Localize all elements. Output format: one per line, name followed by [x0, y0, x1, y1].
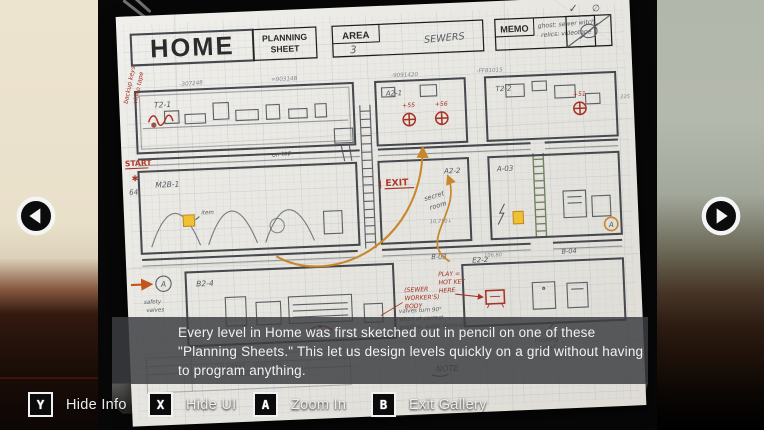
- svg-text:A: A: [608, 220, 614, 229]
- hide-ui-label: Hide UI: [186, 397, 236, 413]
- room-label: A2-2: [443, 166, 461, 176]
- info-caption-panel: Every level in Home was first sketched o…: [112, 317, 648, 384]
- gamepad-a-icon: A: [253, 392, 278, 417]
- svg-text:-FF81015: -FF81015: [476, 67, 503, 74]
- home-logo: HOME: [150, 32, 236, 64]
- svg-text:225: 225: [620, 94, 630, 100]
- room-label: B-04: [561, 247, 577, 256]
- room-label: E2-2: [472, 255, 489, 265]
- item-note: item: [201, 210, 214, 217]
- svg-text:A: A: [160, 280, 167, 289]
- svg-text:WORKER'S): WORKER'S): [404, 294, 439, 302]
- memo-label: MEMO: [500, 23, 529, 34]
- zoom-in-label: Zoom In: [291, 397, 346, 413]
- safety-valves-note: safety: [144, 299, 162, 306]
- exit-gallery-button[interactable]: B Exit Gallery: [371, 392, 487, 417]
- svg-text:HERE: HERE: [439, 287, 456, 295]
- gamepad-x-icon: X: [148, 392, 173, 417]
- hide-info-button[interactable]: Y Hide Info: [28, 392, 127, 417]
- room-label: A-03: [496, 164, 514, 174]
- info-caption-text: Every level in Home was first sketched o…: [178, 324, 644, 381]
- gallery-screen: HOME PLANNING SHEET AREA 3 SEWERS MEMO g…: [0, 0, 764, 430]
- area-value: 3: [350, 45, 357, 56]
- valve-wheel: [574, 102, 587, 115]
- red-star: ✱: [131, 173, 138, 183]
- play-note: PLAY =: [438, 270, 460, 278]
- valve-id: +51: [573, 91, 586, 99]
- hide-info-label: Hide Info: [66, 397, 127, 413]
- orange-arrow: [131, 284, 149, 285]
- gamepad-b-icon: B: [371, 392, 396, 417]
- exit-gallery-label: Exit Gallery: [409, 397, 487, 413]
- button-prompt-bar: Y Hide Info X Hide UI A Zoom In B Exit G…: [0, 388, 764, 430]
- body-note: (SEWER: [404, 286, 428, 294]
- room-label: T2-1: [154, 100, 171, 110]
- subtitle-line1: PLANNING: [262, 32, 308, 44]
- arrow-left-icon: [16, 196, 56, 236]
- svg-text:valves: valves: [146, 307, 164, 314]
- room-label: B2-4: [196, 279, 214, 289]
- background-left-edge: [0, 377, 98, 379]
- corner-empty-mark: ∅: [592, 3, 600, 14]
- svg-text:-9091420: -9091420: [391, 72, 419, 79]
- subtitle-line2: SHEET: [270, 43, 300, 54]
- pencil-number: 64: [129, 187, 139, 196]
- corner-checkmark: ✓: [568, 2, 578, 15]
- previous-photo-button[interactable]: [16, 196, 56, 236]
- next-photo-button[interactable]: [701, 196, 741, 236]
- svg-text:=90314B: =90314B: [271, 76, 298, 83]
- valve-id: +56: [435, 101, 448, 109]
- arrow-right-icon: [701, 196, 741, 236]
- area-label: AREA: [342, 30, 370, 42]
- pencil-number: 10,750↓: [430, 218, 452, 225]
- zoom-in-button[interactable]: A Zoom In: [253, 392, 346, 417]
- gamepad-y-icon: Y: [28, 392, 53, 417]
- start-note: START: [125, 158, 153, 168]
- room-label: M2B-1: [155, 180, 180, 190]
- valve-id: +55: [402, 102, 415, 110]
- hide-ui-button[interactable]: X Hide UI: [148, 392, 236, 417]
- svg-text:HOT KEY: HOT KEY: [438, 278, 466, 286]
- highlight-cell: [513, 211, 524, 224]
- highlight-item: [183, 215, 195, 227]
